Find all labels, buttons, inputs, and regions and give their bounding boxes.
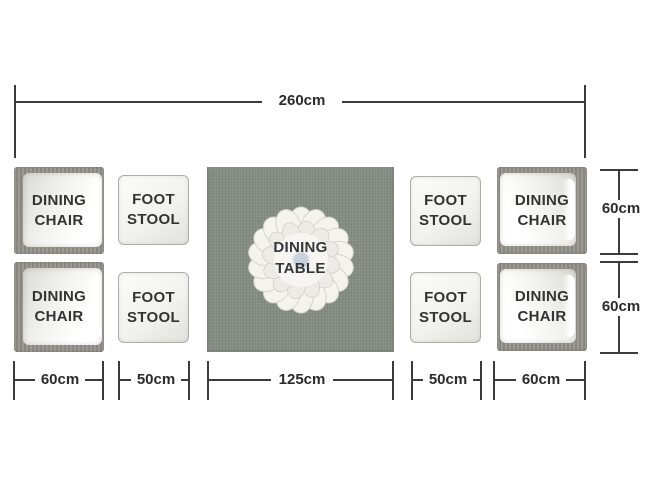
dimension-tick (480, 361, 482, 400)
dimension-tick (392, 361, 394, 400)
foot-stool-bottom-left: FOOT STOOL (118, 272, 189, 343)
dimension-tick (584, 361, 586, 400)
dining-chair-label: DINING CHAIR (497, 167, 587, 254)
dimension-tick (102, 361, 104, 400)
dimension-tick (600, 253, 638, 255)
foot-stool-top-right: FOOT STOOL (410, 176, 481, 246)
dimension-extension-line-right (584, 85, 586, 158)
dimension-label-chair-depth-bottom: 60cm (596, 298, 645, 316)
dining-table: DINING TABLE (207, 167, 394, 352)
dimension-label-stool-left: 50cm (131, 371, 181, 389)
dining-chair-label: DINING CHAIR (497, 263, 587, 351)
dimension-tick (600, 352, 638, 354)
dimension-label-stool-right: 50cm (423, 371, 473, 389)
dimension-extension-line-left (14, 85, 16, 158)
foot-stool-bottom-right: FOOT STOOL (410, 272, 481, 343)
foot-stool-label: FOOT STOOL (411, 273, 480, 342)
dining-chair-label: DINING CHAIR (14, 262, 104, 352)
dining-chair-label: DINING CHAIR (14, 167, 104, 254)
dimension-label-chair-right: 60cm (516, 371, 566, 389)
dimension-label-chair-left: 60cm (35, 371, 85, 389)
dimension-tick (188, 361, 190, 400)
dimension-label-total-width: 260cm (262, 92, 342, 110)
foot-stool-top-left: FOOT STOOL (118, 175, 189, 245)
dining-chair-top-right: DINING CHAIR (497, 167, 587, 254)
dimension-label-chair-depth-top: 60cm (596, 200, 645, 218)
dining-chair-bottom-left: DINING CHAIR (14, 262, 104, 352)
dining-table-label: DINING TABLE (207, 237, 394, 279)
dining-chair-bottom-right: DINING CHAIR (497, 263, 587, 351)
dimension-label-table: 125cm (271, 371, 333, 389)
dining-chair-top-left: DINING CHAIR (14, 167, 104, 254)
foot-stool-label: FOOT STOOL (119, 176, 188, 244)
foot-stool-label: FOOT STOOL (411, 177, 480, 245)
foot-stool-label: FOOT STOOL (119, 273, 188, 342)
furniture-dimension-diagram: 260cm DINING CHAIR FOOT STOOL (0, 0, 645, 484)
